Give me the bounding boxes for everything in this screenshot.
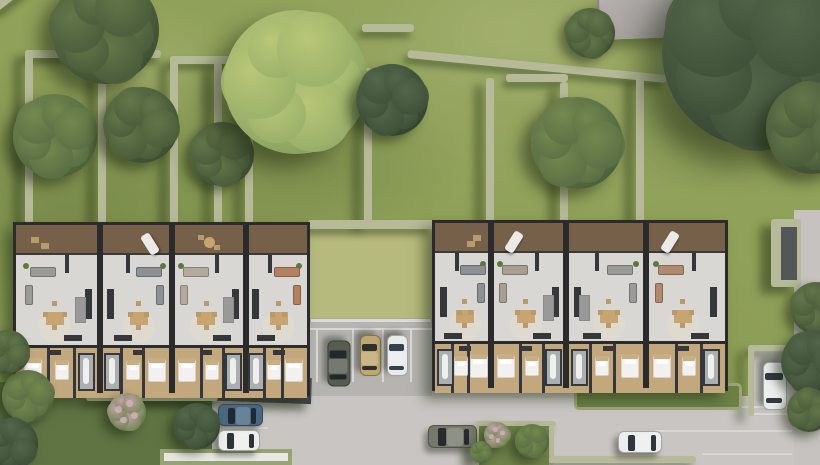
chair bbox=[196, 312, 201, 317]
chair bbox=[52, 325, 57, 330]
west-building bbox=[13, 222, 310, 396]
street-dash-3 bbox=[702, 453, 792, 455]
car-white-west bbox=[218, 430, 260, 451]
car-roof bbox=[388, 351, 405, 364]
car-glass-rear bbox=[766, 398, 783, 403]
bath bbox=[225, 353, 242, 391]
tree-w-1 bbox=[13, 94, 97, 178]
kitchen bbox=[710, 287, 717, 317]
parking-line-3 bbox=[382, 330, 384, 382]
bush-w-edge-1 bbox=[2, 370, 54, 422]
chair bbox=[204, 325, 209, 330]
bush-w-edge-3 bbox=[0, 418, 38, 465]
chair bbox=[212, 312, 217, 317]
pillow bbox=[624, 360, 636, 364]
chair bbox=[680, 323, 685, 328]
tree-lobe bbox=[480, 449, 491, 460]
bathtub bbox=[109, 358, 115, 384]
tree-lobe bbox=[586, 11, 612, 37]
wardrobe bbox=[677, 346, 689, 351]
bath bbox=[545, 349, 562, 386]
parking-line-1 bbox=[316, 330, 318, 382]
tree-e-road-1 bbox=[790, 282, 820, 334]
tree-nw-large bbox=[51, 0, 159, 84]
chair bbox=[204, 301, 209, 306]
car-glass-front bbox=[329, 350, 346, 357]
car-glass-front bbox=[628, 435, 635, 452]
kitchen bbox=[252, 289, 259, 319]
stub bbox=[215, 255, 219, 273]
bed bbox=[178, 358, 196, 382]
car-roof bbox=[236, 407, 250, 425]
car-dark-olive bbox=[328, 340, 351, 386]
chair bbox=[462, 323, 467, 328]
car-glass-front bbox=[227, 433, 234, 449]
wardrobe bbox=[459, 346, 471, 351]
sofaSide bbox=[477, 283, 485, 303]
counter bbox=[64, 335, 82, 341]
bed bbox=[682, 356, 696, 376]
bed bbox=[205, 360, 219, 380]
sofaSide bbox=[156, 285, 164, 305]
deckChair bbox=[31, 237, 39, 243]
bathtub bbox=[708, 354, 714, 379]
stub bbox=[126, 255, 130, 273]
terrace-pad bbox=[160, 449, 292, 465]
wallV bbox=[120, 348, 123, 398]
unit-divider-wall bbox=[97, 225, 103, 393]
sofa bbox=[274, 267, 300, 277]
chair bbox=[52, 301, 57, 306]
tree-e-mass bbox=[766, 82, 820, 174]
pillow bbox=[151, 364, 163, 368]
deckChair bbox=[214, 245, 220, 250]
hedge-n-top-right bbox=[362, 24, 414, 32]
car-white-lot bbox=[387, 335, 408, 376]
counter bbox=[583, 333, 601, 339]
bathtub bbox=[83, 358, 89, 384]
chair bbox=[282, 312, 287, 317]
site-plan-render bbox=[0, 0, 820, 465]
car-roof bbox=[636, 434, 650, 452]
pillow bbox=[270, 366, 278, 370]
kitchen bbox=[440, 287, 447, 317]
bush-sw-flower bbox=[108, 393, 146, 431]
car-glass-rear bbox=[249, 434, 254, 449]
bed bbox=[126, 360, 140, 380]
deckTable bbox=[204, 237, 215, 248]
chair bbox=[672, 310, 677, 315]
stairs bbox=[75, 297, 86, 323]
pillow bbox=[656, 360, 668, 364]
wardrobe bbox=[200, 350, 212, 355]
pillow bbox=[181, 364, 193, 368]
deckChair bbox=[198, 235, 204, 240]
tree-lobe bbox=[141, 109, 181, 149]
pillow bbox=[500, 360, 512, 364]
bathtub bbox=[550, 354, 556, 379]
bed bbox=[267, 360, 281, 380]
counter bbox=[691, 333, 709, 339]
courtyard-lawn bbox=[310, 227, 432, 323]
bath bbox=[104, 353, 121, 391]
stairs bbox=[579, 295, 590, 321]
street-dash-2 bbox=[655, 430, 792, 432]
bed bbox=[454, 356, 468, 376]
bed bbox=[470, 354, 488, 378]
bath bbox=[248, 353, 265, 391]
stub bbox=[535, 253, 539, 271]
wallV bbox=[589, 344, 592, 393]
sofa bbox=[136, 267, 162, 277]
chair bbox=[136, 325, 141, 330]
east-building bbox=[432, 220, 728, 391]
chair bbox=[606, 323, 611, 328]
stairs bbox=[543, 295, 554, 321]
flower-speckle bbox=[115, 406, 122, 413]
unit-divider-wall bbox=[488, 223, 494, 388]
car-glass-rear bbox=[389, 365, 404, 370]
parking-line-2 bbox=[352, 330, 354, 382]
tree-lobe bbox=[577, 121, 625, 169]
car-glass-front bbox=[361, 344, 377, 351]
kitchen bbox=[107, 289, 114, 319]
counter bbox=[533, 333, 551, 339]
tree-ne-mid bbox=[531, 97, 623, 189]
sofaSide bbox=[25, 285, 33, 305]
sofa bbox=[658, 265, 684, 275]
pillow bbox=[685, 362, 693, 366]
pillow bbox=[473, 360, 485, 364]
chair bbox=[468, 310, 473, 315]
car-roof bbox=[329, 358, 347, 373]
pillow bbox=[208, 366, 216, 370]
flower-speckle bbox=[489, 434, 494, 439]
tree-sw-round bbox=[174, 403, 220, 449]
chair bbox=[680, 299, 685, 304]
tree-center-bush bbox=[356, 64, 428, 136]
car-glass-rear bbox=[251, 408, 256, 423]
chair bbox=[606, 299, 611, 304]
hedge-e-top bbox=[506, 74, 568, 82]
car-glass-front bbox=[228, 408, 235, 425]
sofaSide bbox=[629, 283, 637, 303]
pillow bbox=[598, 362, 606, 366]
chair bbox=[523, 299, 528, 304]
wardrobe bbox=[49, 350, 61, 355]
bed bbox=[497, 354, 515, 378]
parking-line-top bbox=[310, 328, 432, 330]
bath bbox=[437, 349, 454, 386]
bed bbox=[621, 354, 639, 378]
chair bbox=[598, 310, 603, 315]
wallV bbox=[519, 344, 522, 393]
bed bbox=[525, 356, 539, 376]
counter bbox=[444, 333, 462, 339]
chair bbox=[462, 299, 467, 304]
wallV bbox=[700, 344, 703, 393]
counter bbox=[114, 335, 132, 341]
tree-lobe bbox=[196, 409, 220, 433]
pillow bbox=[528, 362, 536, 366]
car-glass-rear bbox=[362, 365, 377, 370]
sofaSide bbox=[180, 285, 188, 305]
tree-e-road-3 bbox=[787, 388, 820, 432]
wardrobe bbox=[520, 346, 532, 351]
tree-lobe bbox=[529, 426, 547, 444]
car-roof bbox=[361, 351, 378, 364]
hedge-bay-left bbox=[748, 345, 754, 416]
tree-w-2 bbox=[103, 87, 179, 163]
sofaSide bbox=[499, 283, 507, 303]
sofa bbox=[502, 265, 528, 275]
chair bbox=[276, 301, 281, 306]
terrace-deck bbox=[16, 225, 307, 255]
sofaSide bbox=[655, 283, 663, 303]
car-glass-front bbox=[388, 344, 404, 351]
bathtub bbox=[253, 358, 259, 384]
bed bbox=[285, 358, 303, 382]
wardrobe bbox=[603, 346, 615, 351]
car-glass-rear bbox=[330, 374, 346, 379]
chair bbox=[531, 310, 536, 315]
bed bbox=[148, 358, 166, 382]
hedge-e-vert-1 bbox=[486, 78, 494, 224]
tree-lobe bbox=[28, 379, 55, 406]
wardrobe bbox=[273, 350, 285, 355]
chair bbox=[43, 312, 48, 317]
bush-garden-1 bbox=[515, 424, 549, 458]
sofa bbox=[460, 265, 486, 275]
chair bbox=[62, 312, 67, 317]
bed bbox=[595, 356, 609, 376]
bush-garden-3 bbox=[470, 441, 492, 463]
wallV bbox=[142, 348, 145, 398]
chair bbox=[689, 310, 694, 315]
pillow bbox=[288, 364, 300, 368]
chair bbox=[515, 310, 520, 315]
flower-speckle bbox=[493, 427, 498, 432]
unit-divider-wall bbox=[169, 225, 175, 393]
parking-line-4 bbox=[410, 330, 412, 382]
car-white-street bbox=[618, 431, 662, 453]
counter bbox=[213, 335, 231, 341]
car-glass-rear bbox=[651, 435, 656, 450]
bath bbox=[571, 349, 588, 386]
pillow bbox=[129, 366, 137, 370]
bath bbox=[78, 353, 95, 391]
unit-divider-wall bbox=[563, 223, 569, 388]
bed bbox=[653, 354, 671, 378]
car-roof bbox=[447, 428, 463, 446]
chair bbox=[615, 310, 620, 315]
stub bbox=[455, 253, 459, 271]
pillow bbox=[58, 366, 66, 370]
car-tan bbox=[360, 335, 381, 376]
counter bbox=[257, 335, 275, 341]
tree-lobe bbox=[10, 438, 37, 465]
unit-divider-wall bbox=[643, 223, 649, 388]
stub bbox=[268, 255, 272, 273]
car-roof bbox=[235, 433, 248, 450]
sofa bbox=[183, 267, 209, 277]
chair bbox=[457, 310, 462, 315]
chair bbox=[523, 323, 528, 328]
chair bbox=[128, 312, 133, 317]
wallV bbox=[675, 344, 678, 393]
bush-w-edge-2 bbox=[0, 330, 30, 374]
sofa bbox=[607, 265, 633, 275]
car-glass-front bbox=[438, 428, 446, 445]
tree-e-road-2 bbox=[781, 330, 820, 394]
flower-speckle bbox=[126, 400, 133, 407]
bathtub bbox=[576, 354, 582, 379]
deckChair bbox=[41, 243, 49, 249]
tree-n-small bbox=[565, 8, 615, 58]
bath bbox=[703, 349, 720, 386]
bathtub bbox=[442, 354, 448, 379]
car-glass-rear bbox=[464, 429, 469, 445]
hedge-courtyard-top bbox=[308, 220, 434, 229]
bed bbox=[55, 360, 69, 380]
chair bbox=[276, 325, 281, 330]
garden-path bbox=[781, 227, 797, 280]
tree-lobe bbox=[277, 12, 352, 87]
wallV bbox=[200, 348, 203, 398]
wallV bbox=[281, 348, 284, 398]
tree-center-light bbox=[224, 10, 368, 154]
sofa bbox=[30, 267, 56, 277]
hedge-street-bottom bbox=[548, 456, 696, 463]
wallV bbox=[73, 348, 76, 398]
wardrobe bbox=[133, 350, 145, 355]
deckChair bbox=[467, 241, 475, 247]
stub bbox=[595, 253, 599, 271]
stub bbox=[65, 255, 69, 273]
stairs bbox=[223, 297, 234, 323]
car-blue bbox=[218, 404, 263, 426]
wallV bbox=[613, 344, 616, 393]
chair bbox=[144, 312, 149, 317]
bathtub bbox=[230, 358, 236, 384]
sofaSide bbox=[293, 285, 301, 305]
stub bbox=[692, 253, 696, 271]
hedge-e-vert-3 bbox=[636, 74, 644, 224]
pillow bbox=[457, 362, 465, 366]
chair bbox=[136, 301, 141, 306]
chair bbox=[270, 312, 275, 317]
